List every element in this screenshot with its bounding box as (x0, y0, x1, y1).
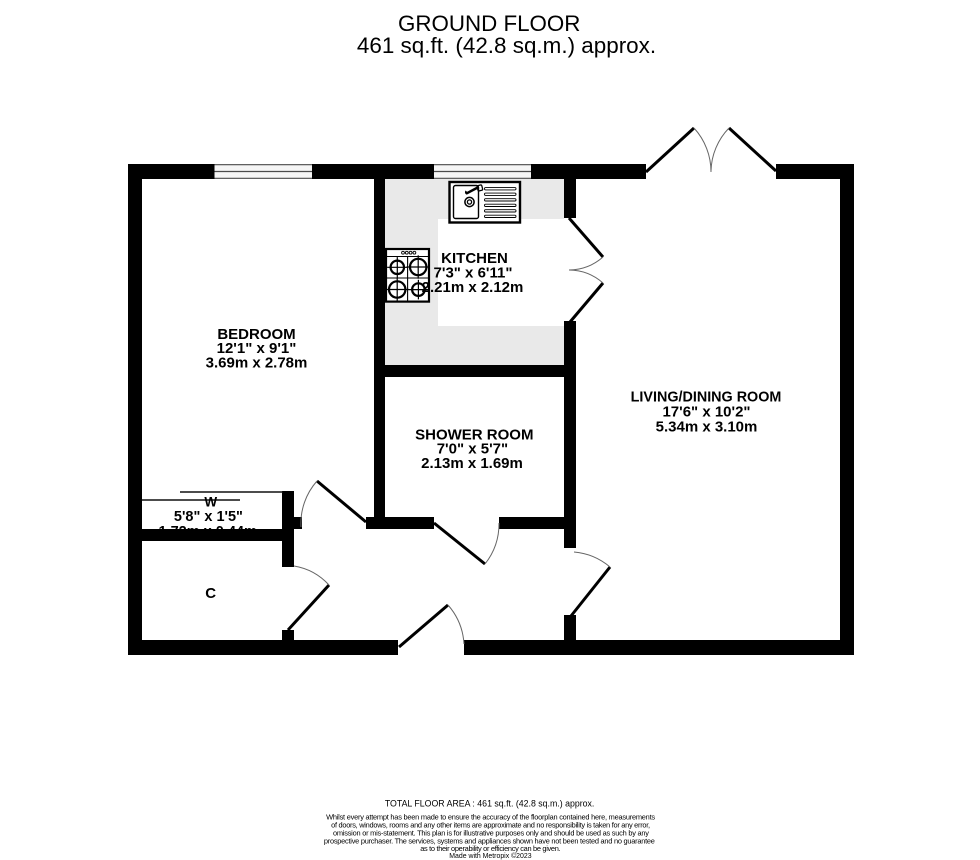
svg-text:2.21m x 2.12m: 2.21m x 2.12m (422, 279, 524, 296)
svg-text:Made with Metropix ©2023: Made with Metropix ©2023 (449, 851, 531, 860)
svg-text:461 sq.ft. (42.8 sq.m.) approx: 461 sq.ft. (42.8 sq.m.) approx. (357, 33, 656, 58)
svg-text:5'8" x 1'5": 5'8" x 1'5" (174, 509, 243, 525)
svg-text:C: C (205, 585, 216, 602)
svg-text:1.72m x 0.44m: 1.72m x 0.44m (159, 524, 257, 540)
svg-text:3.69m x 2.78m: 3.69m x 2.78m (206, 354, 308, 371)
svg-text:5.34m x 3.10m: 5.34m x 3.10m (656, 419, 758, 436)
svg-text:TOTAL FLOOR AREA : 461 sq.ft.: TOTAL FLOOR AREA : 461 sq.ft. (42.8 sq.m… (385, 799, 595, 809)
svg-text:2.13m x 1.69m: 2.13m x 1.69m (421, 455, 523, 472)
svg-text:W: W (204, 495, 217, 510)
